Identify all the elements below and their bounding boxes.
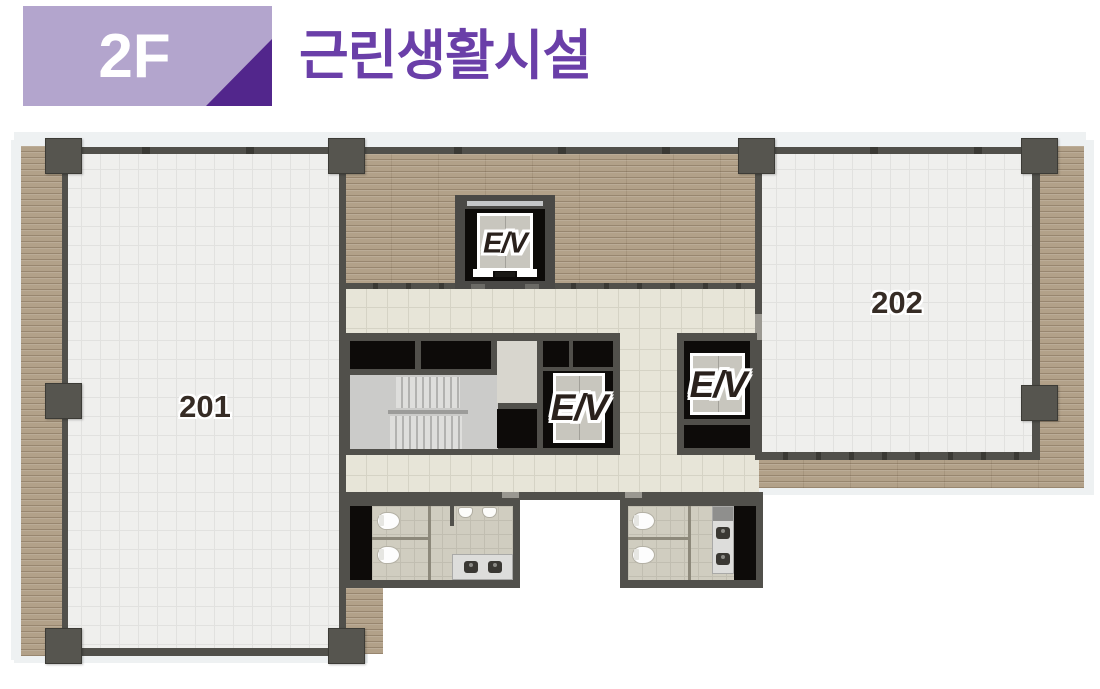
sink-basin [716, 553, 730, 565]
urinal-screen [450, 506, 454, 526]
elevator-door-right [517, 269, 537, 277]
wood-deck-right [1040, 146, 1084, 488]
elevator-door-gap [495, 272, 515, 277]
toilet [377, 546, 400, 564]
floor-plan: E/V E/V [0, 0, 1100, 689]
core-block: E/V [343, 333, 620, 455]
rim-right [1084, 140, 1094, 492]
counter-top [713, 507, 733, 521]
room-201-label: 201 [179, 389, 231, 425]
sink-basin [488, 561, 502, 573]
column [1021, 138, 1058, 174]
elevator-shaft: E/V [684, 341, 750, 448]
stair-flight-upper [396, 377, 460, 408]
sink-basin [716, 527, 730, 539]
restroom-right [620, 498, 763, 588]
stall-divider [372, 537, 430, 540]
utility-cell [497, 341, 537, 403]
storage-closet [350, 341, 415, 369]
wall-202-bottom [755, 452, 1040, 460]
elevator-middle: E/V [543, 341, 613, 448]
rim-bottom-right [757, 487, 1094, 495]
utility-shaft [497, 409, 537, 448]
column [45, 383, 82, 419]
wall-201-bottom [62, 648, 345, 656]
elevator-middle-label: E/V [551, 387, 608, 429]
sink-counter [452, 554, 513, 580]
wall-top [46, 147, 1058, 154]
elevator-door-rail [467, 201, 543, 206]
toilet [632, 546, 655, 564]
room-202-label: 202 [871, 285, 923, 321]
storage-closet [421, 341, 491, 369]
elevator-foot [471, 284, 485, 289]
elevator-top: E/V [455, 195, 555, 289]
sink-basin [464, 561, 478, 573]
shaft-divider [543, 367, 613, 371]
stair-flight-lower [390, 416, 462, 449]
page: 2F 근린생활시설 [0, 0, 1100, 689]
stall-front [688, 506, 691, 580]
rim-left [11, 140, 21, 660]
urinal [482, 507, 497, 518]
column [328, 628, 365, 664]
sink-counter [712, 506, 734, 574]
wood-deck-202-bottom [757, 458, 1084, 488]
column [328, 138, 365, 174]
toilet [632, 512, 655, 530]
stair-landing-rail [388, 410, 468, 414]
service-shaft [350, 506, 372, 580]
restroom-right-floor [628, 506, 734, 580]
shaft-divider [684, 419, 750, 425]
elevator-foot [525, 284, 539, 289]
stairwell [350, 375, 498, 449]
stall-front [428, 506, 431, 580]
column [45, 628, 82, 664]
column [45, 138, 82, 174]
elevator-right-label: E/V [690, 364, 747, 406]
restroom-left [343, 498, 520, 588]
service-shaft [734, 506, 756, 580]
stall-divider [628, 537, 690, 540]
column [1021, 385, 1058, 421]
elevator-top-label: E/V [483, 228, 527, 261]
shaft-divider [569, 341, 573, 367]
elevator-shaft: E/V [465, 209, 545, 281]
urinal [458, 507, 473, 518]
toilet [377, 512, 400, 530]
elevator-right-block: E/V [677, 333, 757, 455]
elevator-door-left [473, 269, 493, 277]
restroom-left-floor [372, 506, 513, 580]
column [738, 138, 775, 174]
